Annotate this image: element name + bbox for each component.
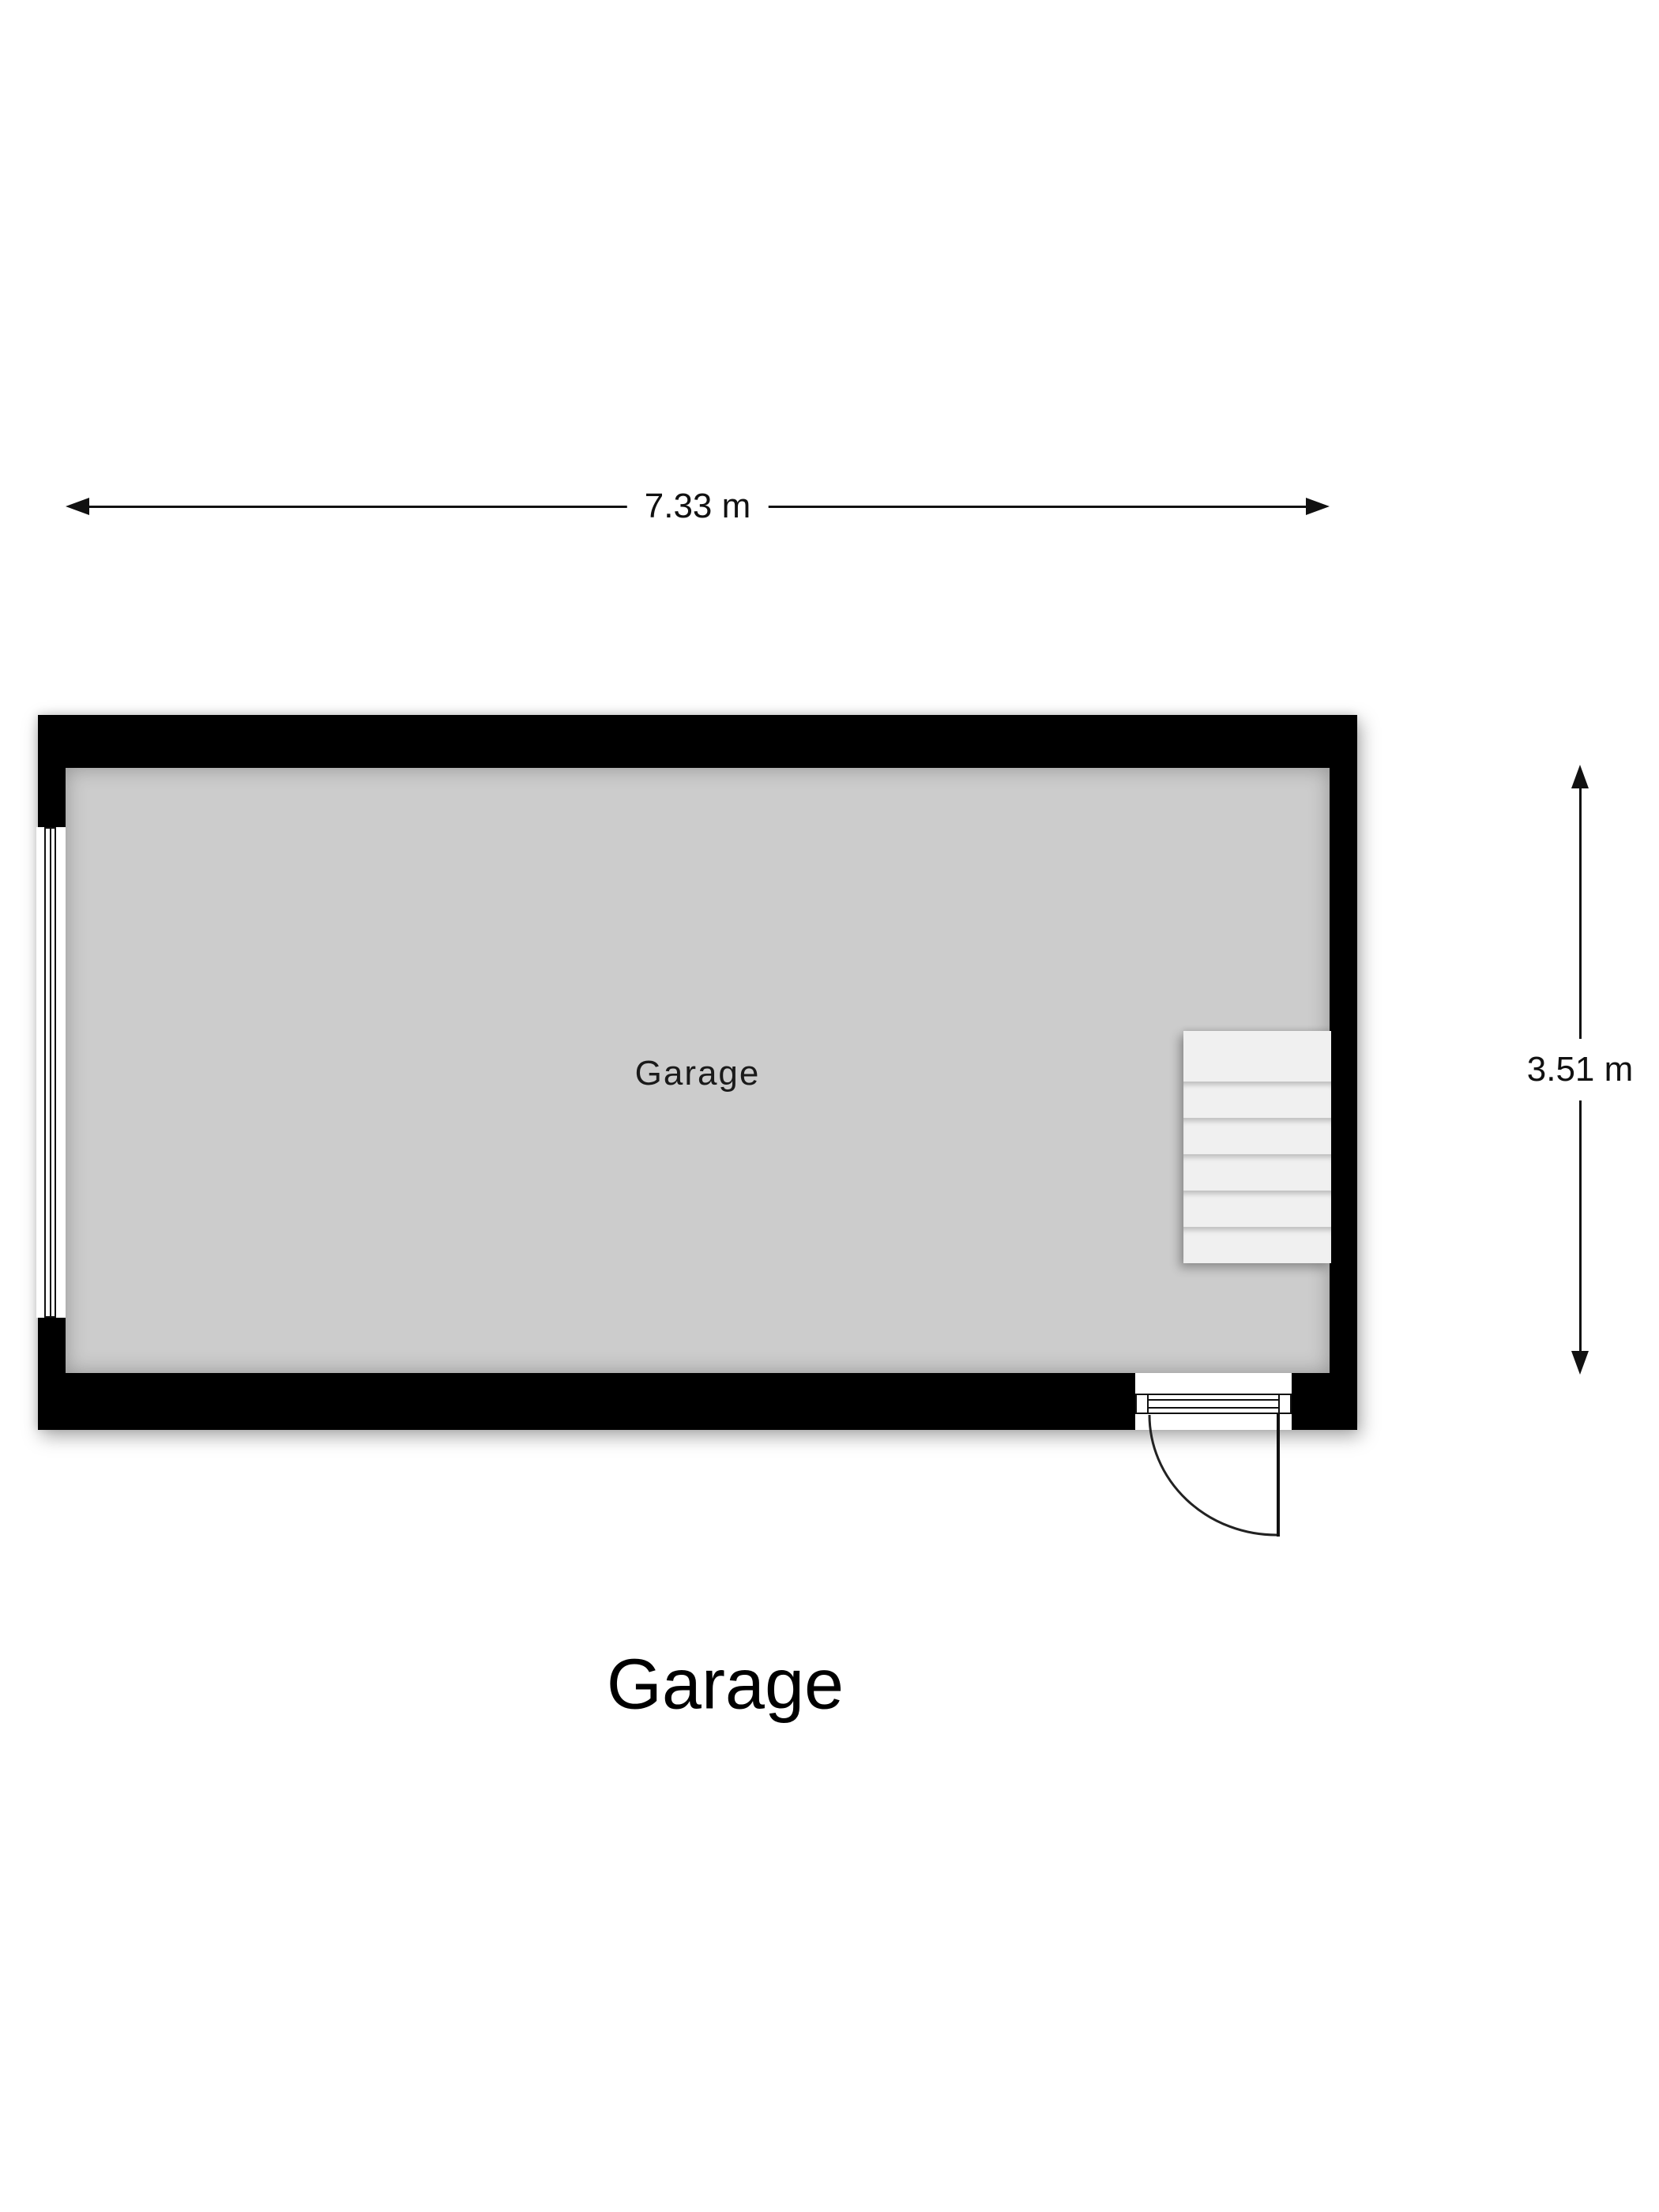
stair-tread xyxy=(1183,1227,1331,1263)
stair-tread xyxy=(1183,1118,1331,1154)
staircase xyxy=(1183,1031,1331,1263)
floorplan-canvas: 7.33 m 3.51 m Garage Garage xyxy=(0,0,1659,2212)
height-dimension: 3.51 m xyxy=(1563,765,1597,1375)
door-swing-arc xyxy=(1149,1415,1277,1535)
arrow-right-icon xyxy=(1306,498,1330,515)
door-jamb-left xyxy=(1135,1394,1149,1414)
stair-tread xyxy=(1183,1154,1331,1191)
width-dimension-label: 7.33 m xyxy=(627,483,769,529)
door-leaf xyxy=(1277,1414,1280,1537)
door-jamb-right xyxy=(1278,1394,1292,1414)
arrow-left-icon xyxy=(66,498,89,515)
width-dimension: 7.33 m xyxy=(66,490,1330,525)
stair-tread xyxy=(1183,1031,1331,1082)
arrow-up-icon xyxy=(1571,765,1589,788)
room-label: Garage xyxy=(635,1054,761,1093)
floorplan-title: Garage xyxy=(607,1645,844,1726)
stair-tread xyxy=(1183,1082,1331,1118)
door-threshold xyxy=(1148,1394,1279,1414)
height-dimension-label: 3.51 m xyxy=(1519,1039,1642,1100)
arrow-down-icon xyxy=(1571,1351,1589,1375)
window-frame xyxy=(44,827,56,1318)
stair-tread xyxy=(1183,1191,1331,1227)
window xyxy=(36,827,66,1318)
